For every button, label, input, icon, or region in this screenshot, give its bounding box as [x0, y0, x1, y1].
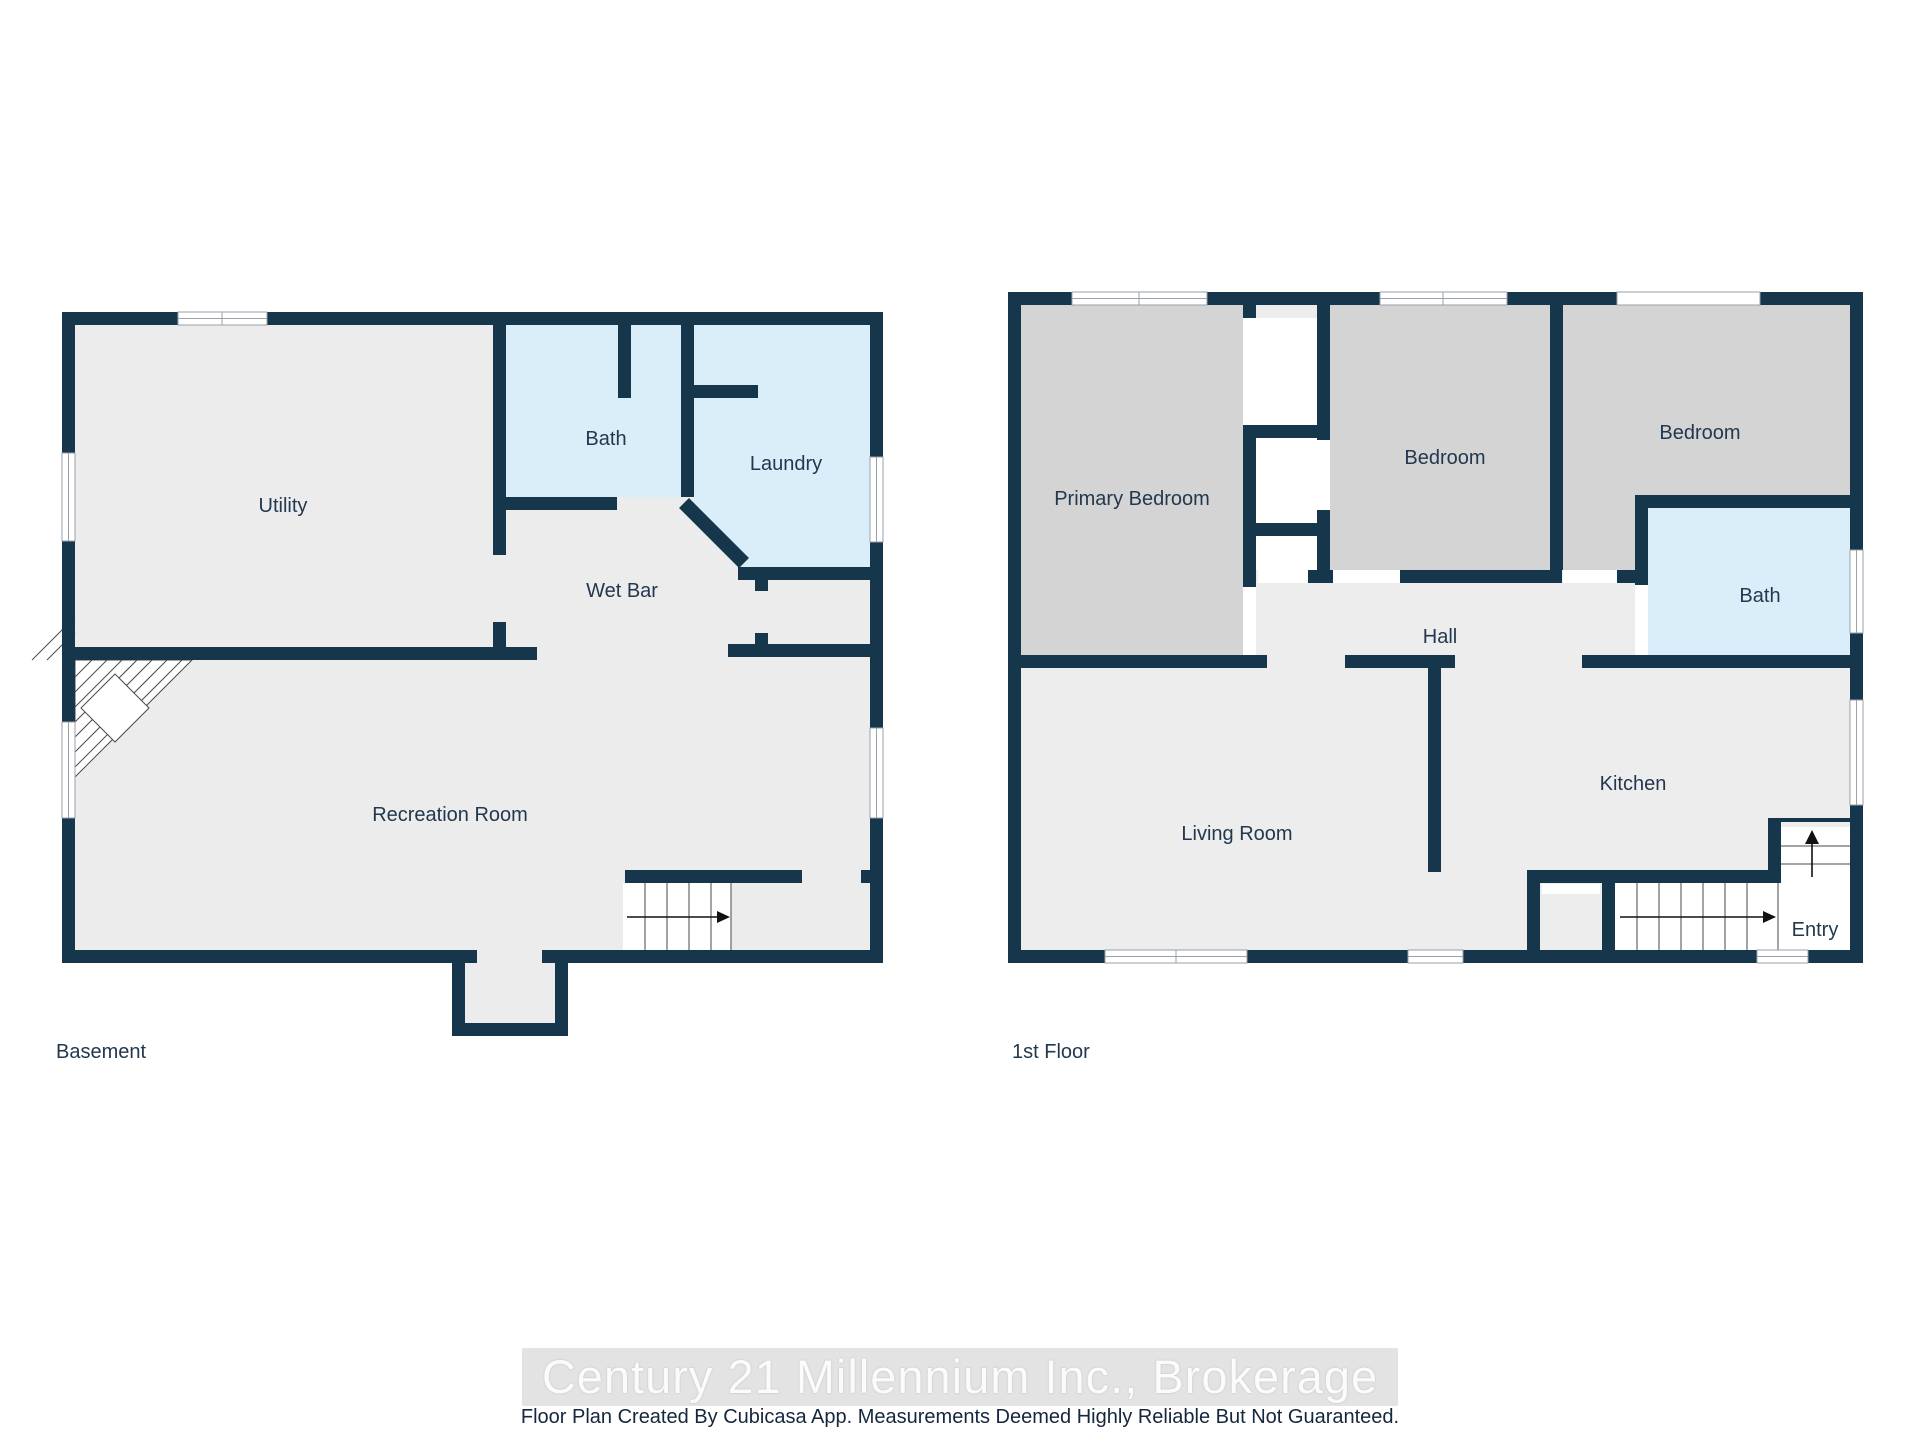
closet1 [1256, 318, 1317, 425]
room-label-bedroom-2: Bedroom [1659, 422, 1740, 444]
floor-label-1st-floor: 1st Floor [1012, 1041, 1090, 1063]
stair-landing-opening [1542, 884, 1600, 894]
room-label-hall: Hall [1423, 626, 1457, 648]
room-label-bedroom-1: Bedroom [1404, 447, 1485, 469]
closet3-opening [1258, 570, 1308, 583]
basement-plan: Utility Bath Laundry Wet Bar Recreation … [32, 312, 883, 1063]
bath-floor [506, 325, 681, 497]
room-label-laundry: Laundry [750, 453, 822, 475]
brokerage-watermark-text: Century 21 Millennium Inc., Brokerage [522, 1348, 1398, 1406]
bumpout-opening [477, 950, 542, 963]
primary-bedroom-floor [1021, 305, 1243, 655]
brokerage-watermark: Century 21 Millennium Inc., Brokerage [0, 1348, 1920, 1406]
bedroom1-door-opening [1333, 570, 1400, 583]
room-label-living-room: Living Room [1181, 823, 1292, 845]
bumpout-floor [465, 963, 555, 1023]
closet2 [1256, 438, 1317, 523]
room-label-utility: Utility [259, 495, 308, 517]
basement-staircase [623, 883, 731, 950]
wall-opening-band [1617, 292, 1760, 305]
floorplan-page: Utility Bath Laundry Wet Bar Recreation … [0, 0, 1920, 1440]
room-label-primary-bedroom: Primary Bedroom [1054, 488, 1210, 510]
bedroom1-floor [1330, 305, 1550, 570]
bath-door-opening [1635, 585, 1648, 655]
disclaimer-text: Floor Plan Created By Cubicasa App. Meas… [0, 1406, 1920, 1429]
primary-door-opening [1243, 587, 1256, 655]
room-label-recreation-room: Recreation Room [372, 804, 528, 826]
closet3 [1256, 536, 1317, 570]
bedroom2-door-opening [1563, 570, 1617, 583]
closet2-opening [1317, 440, 1330, 510]
room-label-kitchen: Kitchen [1600, 773, 1667, 795]
floorplan-image: Utility Bath Laundry Wet Bar Recreation … [0, 0, 1920, 1440]
room-label-bath-basement: Bath [585, 428, 626, 450]
room-label-wet-bar: Wet Bar [586, 580, 658, 602]
floor-label-basement: Basement [56, 1041, 146, 1063]
first-floor-plan: Primary Bedroom Bedroom Bedroom Bath Hal… [1008, 292, 1863, 1063]
closet1-opening [1243, 318, 1256, 425]
room-label-entry: Entry [1792, 919, 1839, 941]
up-staircase [1781, 827, 1850, 883]
room-label-bath-first: Bath [1739, 585, 1780, 607]
basement-floors [75, 325, 870, 1036]
bath-floor-first [1648, 508, 1850, 655]
